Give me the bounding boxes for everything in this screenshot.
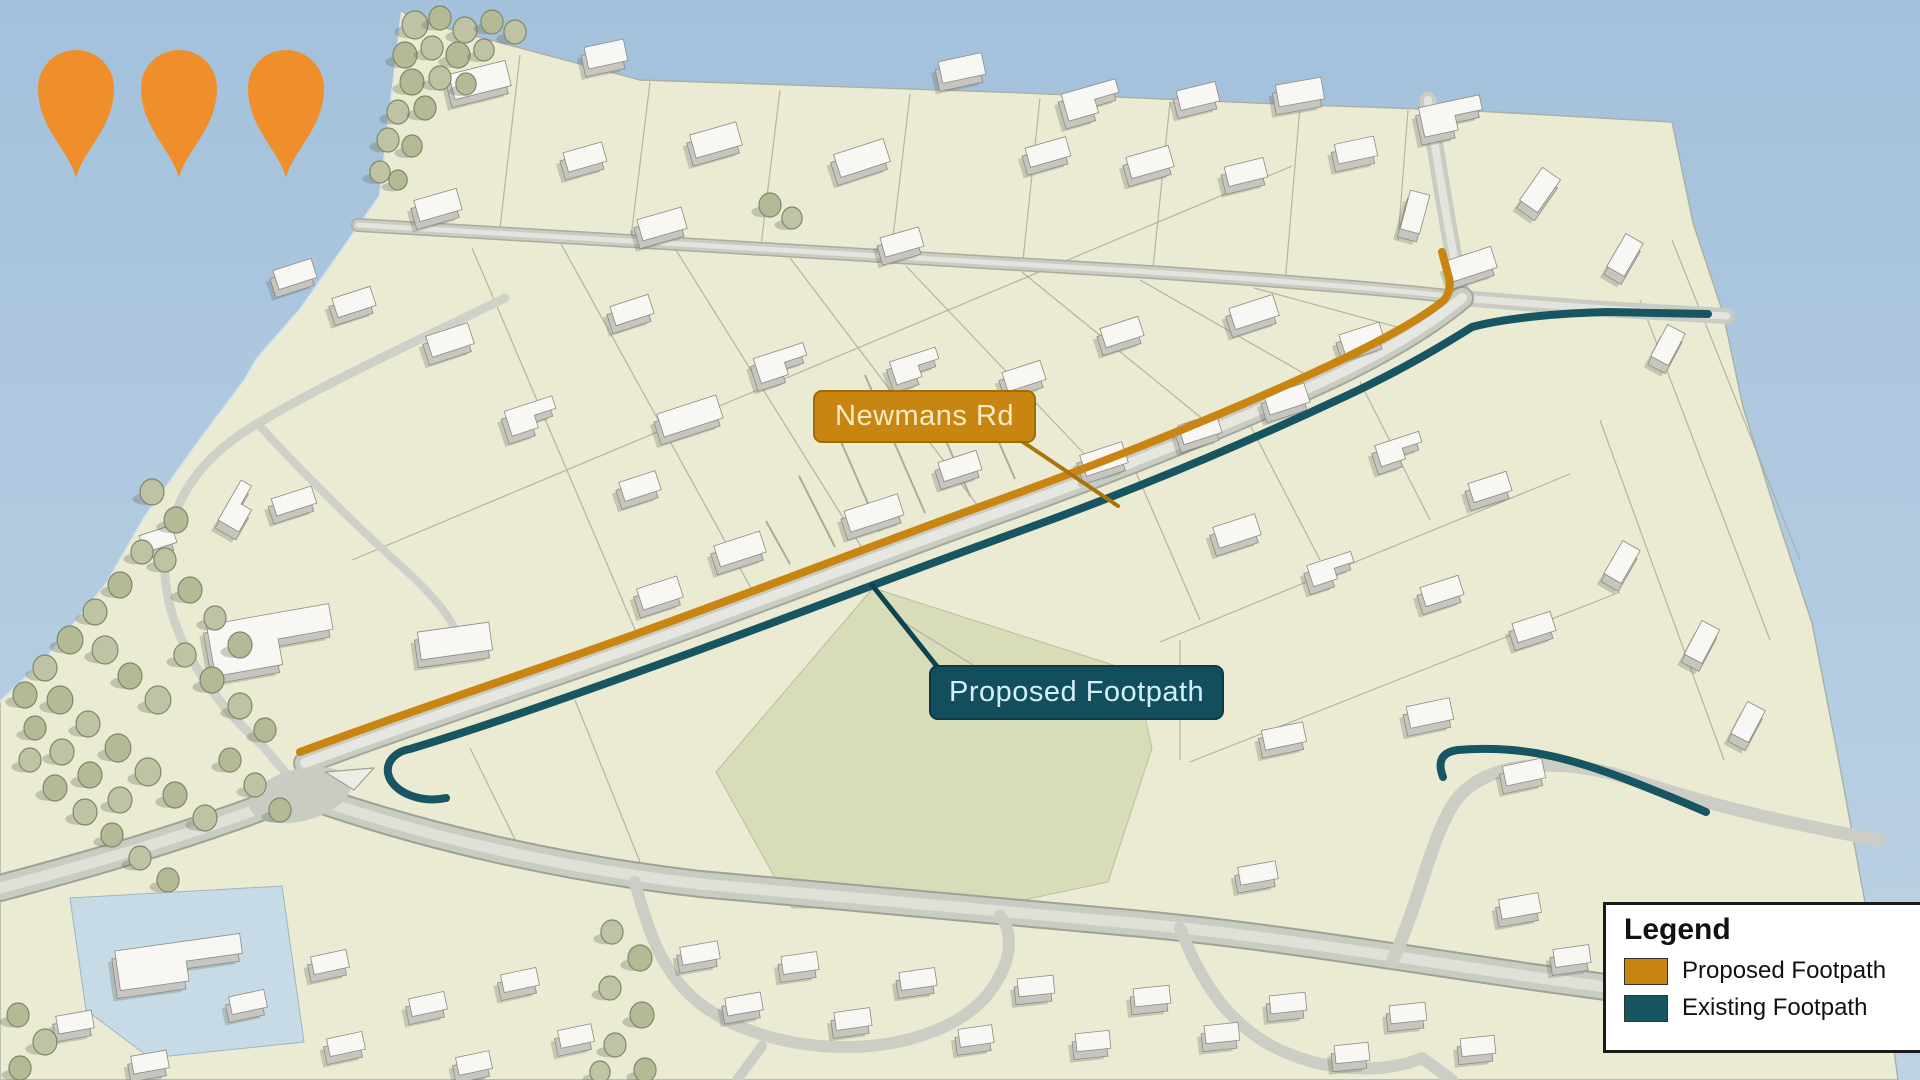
- map-pin-icon: [248, 50, 324, 178]
- road-name-label: Newmans Rd: [813, 390, 1036, 443]
- existing-footpath-swatch: [1624, 995, 1668, 1022]
- map-pin-markers: [0, 0, 360, 178]
- proposed-footpath-label: Proposed Footpath: [929, 665, 1224, 720]
- legend-item-label: Proposed Footpath: [1682, 957, 1886, 985]
- legend-item-label: Existing Footpath: [1682, 994, 1867, 1022]
- legend-item-existing: Existing Footpath: [1624, 994, 1920, 1022]
- proposed-footpath-swatch: [1624, 958, 1668, 985]
- legend-panel: Legend Proposed Footpath Existing Footpa…: [1603, 902, 1920, 1053]
- legend-item-proposed: Proposed Footpath: [1624, 957, 1920, 985]
- map-pin-icon: [38, 50, 114, 178]
- legend-title: Legend: [1624, 913, 1920, 947]
- map-view: Newmans Rd Proposed Footpath Legend Prop…: [0, 0, 1920, 1080]
- map-pin-icon: [141, 50, 217, 178]
